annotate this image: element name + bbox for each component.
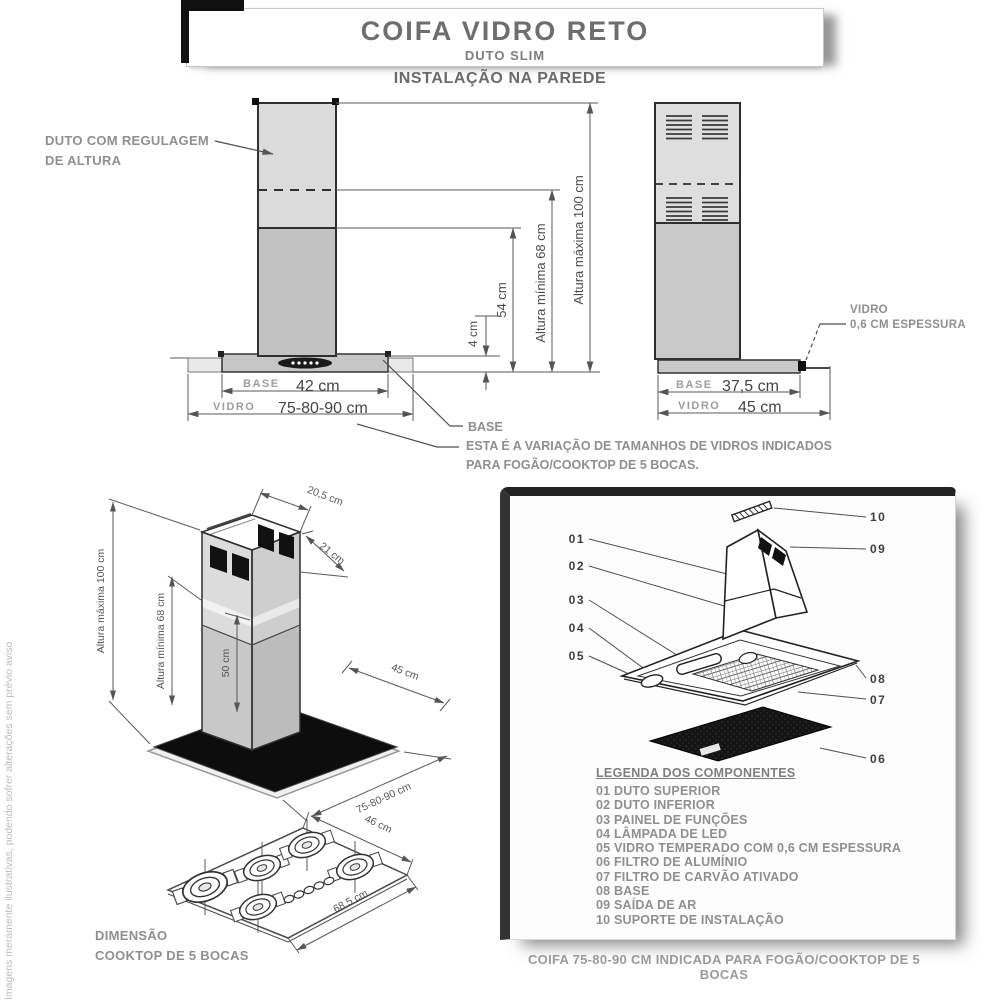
svg-text:4 cm: 4 cm — [466, 321, 480, 347]
svg-text:37,5 cm: 37,5 cm — [722, 378, 779, 395]
svg-text:45 cm: 45 cm — [738, 399, 782, 416]
callout-03: 03 — [569, 593, 585, 607]
glass-size-note-line1: ESTA É A VARIAÇÃO DE TAMANHOS DE VIDROS … — [466, 437, 832, 456]
side-duct-lower — [655, 223, 740, 359]
exploded-chimney — [723, 530, 807, 639]
callout-10: 10 — [870, 510, 886, 524]
legend-item-09: 09 SAÍDA DE AR — [596, 898, 936, 912]
exploded-view-drawing: 01 02 03 04 05 10 09 08 07 06 — [505, 490, 945, 775]
svg-text:Altura mínima 68 cm: Altura mínima 68 cm — [533, 223, 548, 342]
dim-altura-maxima: Altura máxima 100 cm — [571, 103, 590, 372]
legend-item-04: 04 LÂMPADA DE LED — [596, 827, 936, 841]
iso-dim-21cm: 21 cm — [300, 531, 348, 577]
legend-item-07: 07 FILTRO DE CARVÃO ATIVADO — [596, 870, 936, 884]
svg-text:BASE: BASE — [676, 379, 713, 391]
svg-text:Altura máxima 100 cm: Altura máxima 100 cm — [95, 549, 107, 654]
aluminum-filter — [650, 707, 831, 761]
callout-07: 07 — [870, 693, 886, 707]
legend-item-10: 10 SUPORTE DE INSTALAÇÃO — [596, 913, 936, 927]
legend-item-01: 01 DUTO SUPERIOR — [596, 784, 936, 798]
legend-item-03: 03 PAINEL DE FUNÇÕES — [596, 813, 936, 827]
svg-text:VIDRO: VIDRO — [213, 401, 255, 413]
duct-adjust-label-line2: DE ALTURA — [45, 151, 209, 171]
svg-text:46 cm: 46 cm — [363, 813, 394, 836]
duct-adjust-label: DUTO COM REGULAGEM DE ALTURA — [45, 131, 209, 171]
iso-dim-altura-minima: Altura mínima 68 cm — [155, 576, 201, 705]
svg-text:BASE: BASE — [243, 378, 280, 390]
svg-text:VIDRO: VIDRO — [678, 400, 720, 412]
page-title: COIFA VIDRO RETO — [187, 16, 823, 47]
glass-thickness-line2: 0,6 CM ESPESSURA — [850, 318, 966, 333]
dim-54cm: 54 cm — [494, 228, 513, 372]
legend-item-06: 06 FILTRO DE ALUMÍNIO — [596, 855, 936, 869]
glass-thickness-leader — [806, 324, 820, 360]
callout-09: 09 — [870, 542, 886, 556]
iso-dim-205cm: 20,5 cm — [252, 484, 345, 532]
note-leader — [357, 424, 459, 447]
side-base — [658, 360, 800, 373]
dim-4cm: 4 cm — [466, 316, 497, 390]
base-callout-label: BASE — [468, 418, 503, 437]
svg-text:Altura máxima 100 cm: Altura máxima 100 cm — [571, 175, 586, 304]
callout-08: 08 — [870, 672, 886, 686]
iso-duct-tower — [202, 514, 300, 750]
dim-base-42: BASE 42 cm — [222, 374, 388, 398]
mounting-bracket — [732, 501, 772, 521]
callout-04: 04 — [569, 621, 585, 635]
cooktop-dimension-label: DIMENSÃO COOKTOP DE 5 BOCAS — [95, 926, 249, 966]
components-legend: LEGENDA DOS COMPONENTES 01 DUTO SUPERIOR… — [596, 766, 936, 927]
legend-item-02: 02 DUTO INFERIOR — [596, 798, 936, 812]
glass-size-note-line2: PARA FOGÃO/COOKTOP DE 5 BOCAS. — [466, 456, 832, 475]
front-duct-upper — [258, 103, 336, 228]
callout-02: 02 — [569, 559, 585, 573]
svg-text:45 cm: 45 cm — [390, 661, 421, 683]
scan-artifact-top — [186, 0, 244, 11]
callout-05: 05 — [569, 649, 585, 663]
dim-vidro-45: VIDRO 45 cm — [658, 399, 830, 416]
svg-text:21 cm: 21 cm — [317, 540, 347, 567]
iso-mounting-rail — [207, 514, 251, 529]
front-view-hood: 4 cm 54 cm Altura mínima 68 cm Altura má… — [170, 98, 600, 447]
callout-01: 01 — [569, 532, 585, 546]
svg-text:75-80-90 cm: 75-80-90 cm — [278, 400, 368, 417]
glass-size-note: ESTA É A VARIAÇÃO DE TAMANHOS DE VIDROS … — [466, 437, 832, 475]
isometric-installation-drawing: Altura máxima 100 cm Altura mínima 68 cm… — [60, 480, 480, 980]
page-subtitle: DUTO SLIM — [187, 48, 823, 63]
side-view-hood: BASE 37,5 cm VIDRO 45 cm — [655, 103, 846, 420]
dim-altura-minima: Altura mínima 68 cm — [533, 190, 552, 372]
cooktop-label-line2: COOKTOP DE 5 BOCAS — [95, 946, 249, 966]
glass-thickness-line1: VIDRO — [850, 303, 966, 318]
panel-caption: COIFA 75-80-90 CM INDICADA PARA FOGÃO/CO… — [503, 952, 945, 982]
svg-text:75-80-90 cm: 75-80-90 cm — [354, 780, 413, 816]
cooktop-label-line1: DIMENSÃO — [95, 926, 249, 946]
watermark-text: Imagens meramente ilustrativas, podendo … — [3, 628, 15, 1000]
legend-item-08: 08 BASE — [596, 884, 936, 898]
iso-dim-altura-maxima: Altura máxima 100 cm — [95, 499, 200, 744]
svg-text:42 cm: 42 cm — [296, 378, 340, 395]
svg-text:Altura mínima 68 cm: Altura mínima 68 cm — [155, 593, 167, 690]
glass-thickness-callout: VIDRO 0,6 CM ESPESSURA — [850, 303, 966, 333]
svg-text:50 cm: 50 cm — [220, 648, 232, 677]
title-card: COIFA VIDRO RETO DUTO SLIM — [186, 8, 824, 67]
duct-adjust-label-line1: DUTO COM REGULAGEM — [45, 131, 209, 151]
legend-title: LEGENDA DOS COMPONENTES — [596, 766, 936, 780]
svg-text:20,5 cm: 20,5 cm — [305, 484, 344, 509]
exploded-hood-body — [622, 630, 858, 705]
iso-dim-45cm: 45 cm — [342, 661, 450, 711]
svg-text:54 cm: 54 cm — [494, 282, 509, 317]
front-duct-lower — [258, 228, 336, 356]
callout-06: 06 — [870, 752, 886, 766]
legend-item-05: 05 VIDRO TEMPERADO COM 0,6 CM ESPESSURA — [596, 841, 936, 855]
